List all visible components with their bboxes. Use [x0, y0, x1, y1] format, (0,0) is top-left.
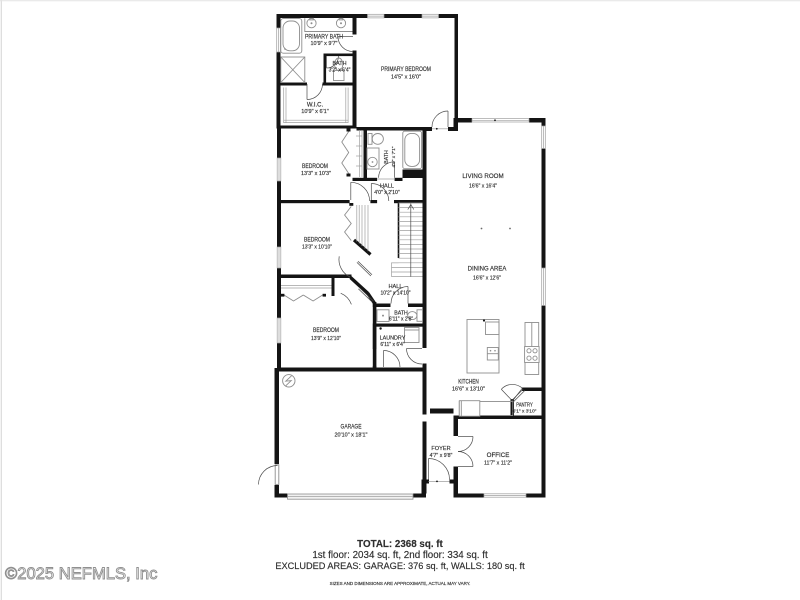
svg-text:13'9" x 12'10": 13'9" x 12'10" — [311, 336, 341, 342]
svg-text:BEDROOM: BEDROOM — [304, 237, 330, 244]
svg-text:6'11" x 6'4": 6'11" x 6'4" — [380, 342, 404, 348]
svg-text:16'6" x 12'6": 16'6" x 12'6" — [473, 276, 501, 282]
svg-text:4'0" x 2'10": 4'0" x 2'10" — [374, 190, 400, 196]
svg-text:©2025 NEFMLS, Inc: ©2025 NEFMLS, Inc — [5, 564, 157, 583]
svg-text:20'10" x 18'1": 20'10" x 18'1" — [335, 433, 368, 439]
svg-text:SIZES AND DIMENSIONS ARE APPRO: SIZES AND DIMENSIONS ARE APPROXIMATE, AC… — [330, 581, 471, 586]
svg-text:LIVING ROOM: LIVING ROOM — [462, 173, 503, 180]
svg-text:13'3" x 10'10": 13'3" x 10'10" — [302, 245, 332, 251]
svg-text:1st floor: 2034 sq. ft, 2nd fl: 1st floor: 2034 sq. ft, 2nd floor: 334 s… — [312, 550, 488, 561]
svg-text:DINING AREA: DINING AREA — [468, 267, 507, 273]
svg-text:FOYER: FOYER — [431, 446, 450, 452]
svg-text:14'5" x 16'0": 14'5" x 16'0" — [391, 75, 421, 81]
svg-text:BEDROOM: BEDROOM — [302, 163, 328, 170]
svg-text:13'3" x 10'3": 13'3" x 10'3" — [301, 171, 331, 177]
svg-text:PRIMARY BEDROOM: PRIMARY BEDROOM — [381, 66, 431, 73]
svg-text:11'7" x 11'2": 11'7" x 11'2" — [484, 461, 512, 467]
svg-text:6'1" x 3'10": 6'1" x 3'10" — [513, 409, 537, 415]
svg-text:LAUNDRY: LAUNDRY — [380, 336, 406, 342]
svg-text:HALL: HALL — [389, 284, 403, 290]
svg-text:16'6" x 13'10": 16'6" x 13'10" — [452, 387, 485, 393]
svg-text:10'2" x 14'10": 10'2" x 14'10" — [381, 291, 411, 297]
svg-text:BATH: BATH — [333, 61, 347, 67]
svg-text:TOTAL: 2368 sq. ft: TOTAL: 2368 sq. ft — [357, 539, 443, 550]
svg-text:HALL: HALL — [380, 184, 394, 190]
svg-text:3'2" x 6'4": 3'2" x 6'4" — [329, 68, 351, 74]
svg-text:6'11" x 2'8": 6'11" x 2'8" — [389, 317, 413, 323]
svg-text:10'9" x 6'1": 10'9" x 6'1" — [301, 109, 329, 115]
svg-text:PRIMARY BATH: PRIMARY BATH — [305, 34, 343, 41]
svg-text:BATH: BATH — [384, 150, 390, 164]
svg-text:BEDROOM: BEDROOM — [313, 327, 339, 334]
svg-text:4'7" x 9'8": 4'7" x 9'8" — [430, 453, 453, 459]
svg-text:GARAGE: GARAGE — [341, 424, 362, 431]
svg-text:OFFICE: OFFICE — [487, 452, 510, 459]
svg-text:16'6" x 16'4": 16'6" x 16'4" — [469, 184, 497, 190]
svg-text:4'9" x 7'1": 4'9" x 7'1" — [391, 146, 397, 167]
svg-text:PANTRY: PANTRY — [516, 403, 533, 409]
svg-text:EXCLUDED AREAS: GARAGE: 376 sq: EXCLUDED AREAS: GARAGE: 376 sq. ft, WALL… — [275, 561, 525, 571]
svg-text:10'9" x 9'7": 10'9" x 9'7" — [311, 41, 338, 47]
svg-text:W.I.C.: W.I.C. — [307, 103, 324, 109]
svg-text:KITCHEN: KITCHEN — [458, 380, 479, 386]
